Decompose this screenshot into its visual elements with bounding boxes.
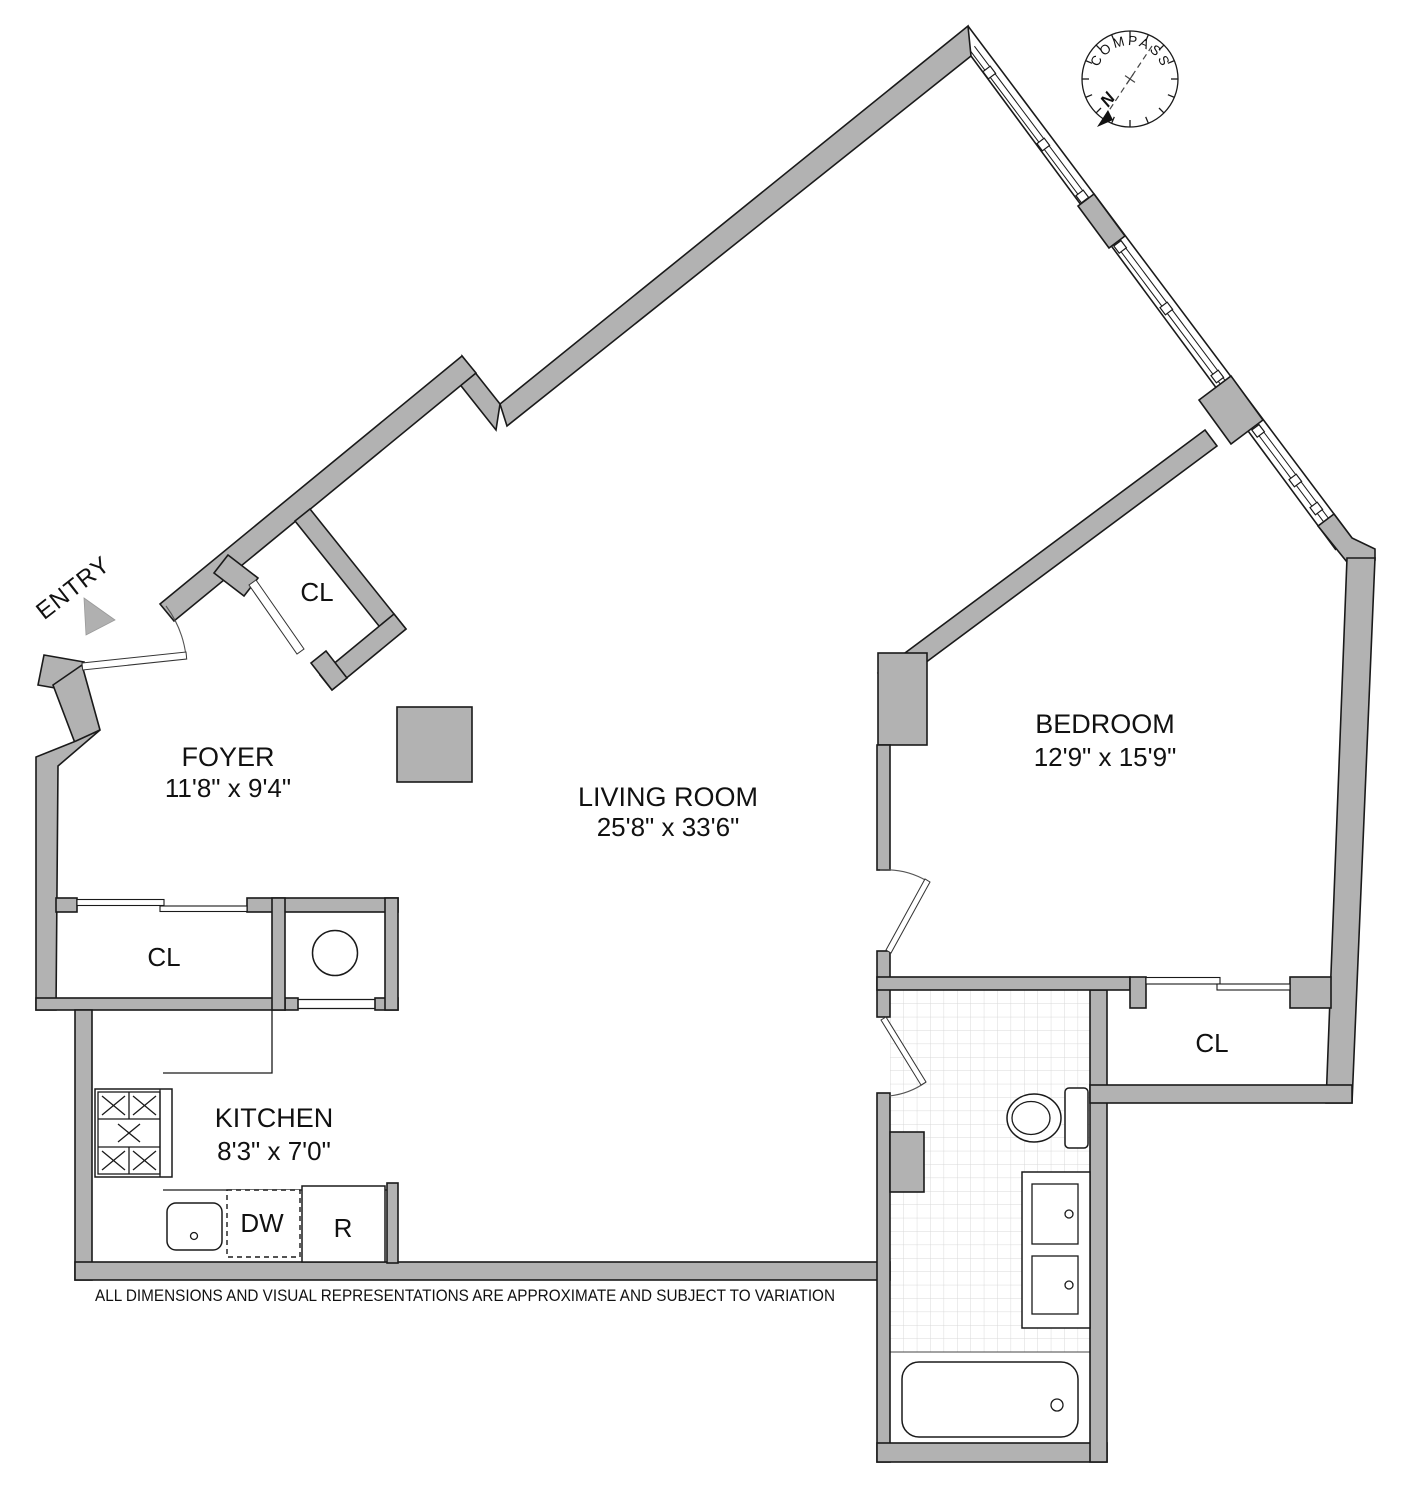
kitchen-label: KITCHEN — [215, 1103, 334, 1133]
bedroom-closet-slider — [1217, 984, 1290, 990]
bedroom-closet-label: CL — [1195, 1028, 1228, 1058]
wall-segment — [285, 998, 298, 1010]
wall-segment — [272, 898, 285, 1010]
wall-segment — [75, 1010, 92, 1280]
bedroom-label: BEDROOM — [1035, 709, 1175, 739]
wall-segment — [75, 1262, 890, 1280]
wall-segment — [1130, 977, 1146, 1008]
kitchen-dims: 8'3" x 7'0" — [217, 1136, 331, 1166]
wall-segment — [877, 1443, 1107, 1462]
living-room-label: LIVING ROOM — [578, 782, 758, 812]
wall-segment — [385, 898, 398, 1010]
floorplan-page: COMPASS N ENTRY FOYER 11'8" x 9'4" LIVIN… — [0, 0, 1410, 1500]
washer — [313, 931, 358, 976]
wall-segment — [877, 1093, 890, 1462]
foyer-label: FOYER — [181, 742, 274, 772]
toilet-tank — [1065, 1088, 1088, 1148]
hall-closet-label: CL — [147, 942, 180, 972]
wall-segment — [36, 998, 285, 1010]
hall-closet-slider — [77, 900, 164, 906]
compass: COMPASS N — [1082, 31, 1178, 127]
column — [397, 707, 472, 782]
wall-segment — [878, 653, 927, 745]
refrigerator-label: R — [334, 1213, 353, 1243]
bedroom-dims: 12'9" x 15'9" — [1034, 742, 1177, 772]
wall-segment — [890, 1132, 924, 1192]
living-room-dims: 25'8" x 33'6" — [597, 812, 740, 842]
kitchen-sink — [167, 1203, 222, 1250]
dishwasher-label: DW — [240, 1208, 284, 1238]
wall-segment — [877, 745, 890, 870]
wall-segment — [387, 1183, 398, 1263]
bedroom-closet-slider — [1146, 978, 1220, 985]
foyer-closet-label: CL — [300, 577, 333, 607]
bathtub — [902, 1362, 1078, 1437]
wall-segment — [1090, 990, 1107, 1462]
wall-segment — [247, 898, 398, 912]
wall-segment — [1090, 1085, 1352, 1103]
wall-segment — [56, 898, 77, 912]
wall-segment — [1290, 977, 1331, 1008]
wall-segment — [877, 977, 1130, 990]
foyer-dims: 11'8" x 9'4" — [165, 773, 291, 803]
floorplan-canvas: COMPASS N ENTRY FOYER 11'8" x 9'4" LIVIN… — [0, 0, 1410, 1500]
disclaimer-text: ALL DIMENSIONS AND VISUAL REPRESENTATION… — [95, 1286, 835, 1305]
hall-closet-slider — [160, 906, 247, 912]
